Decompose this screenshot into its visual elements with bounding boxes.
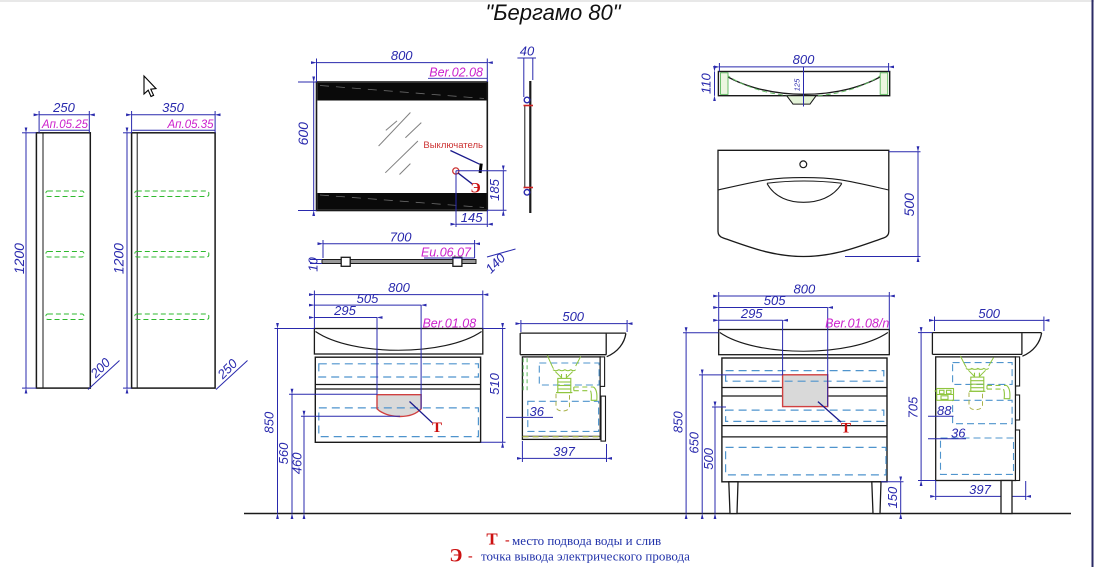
- svg-text:510: 510: [487, 372, 502, 394]
- svg-text:-: -: [505, 533, 510, 548]
- svg-text:185: 185: [487, 178, 502, 200]
- svg-text:350: 350: [162, 100, 184, 115]
- svg-text:705: 705: [906, 396, 921, 418]
- svg-text:Ber.02.08: Ber.02.08: [429, 66, 483, 80]
- svg-text:295: 295: [740, 306, 763, 321]
- svg-text:точка вывода электрического пр: точка вывода электрического провода: [481, 549, 690, 564]
- svg-text:125: 125: [793, 78, 802, 91]
- svg-text:800: 800: [391, 48, 413, 63]
- svg-text:800: 800: [388, 280, 410, 295]
- svg-text:Ап.05.25: Ап.05.25: [41, 119, 89, 131]
- svg-text:Выключатель: Выключатель: [423, 140, 483, 151]
- svg-text:800: 800: [793, 52, 815, 67]
- svg-text:"Бергамо 80": "Бергамо 80": [485, 0, 621, 25]
- svg-text:505: 505: [764, 293, 786, 308]
- svg-text:36: 36: [530, 404, 545, 419]
- svg-text:500: 500: [901, 193, 917, 217]
- svg-text:145: 145: [461, 210, 483, 225]
- svg-text:250: 250: [214, 355, 241, 382]
- svg-text:850: 850: [262, 411, 277, 433]
- svg-text:397: 397: [969, 482, 991, 497]
- svg-text:500: 500: [978, 306, 1000, 321]
- svg-text:1200: 1200: [11, 243, 27, 274]
- svg-text:Ап.05.35: Ап.05.35: [167, 119, 215, 131]
- svg-text:500: 500: [562, 309, 584, 324]
- svg-text:650: 650: [687, 431, 702, 453]
- svg-text:88: 88: [937, 403, 952, 418]
- svg-text:1200: 1200: [111, 243, 127, 274]
- svg-text:40: 40: [520, 44, 535, 59]
- svg-text:Т: Т: [486, 530, 498, 549]
- svg-text:250: 250: [52, 100, 75, 115]
- svg-text:850: 850: [671, 410, 686, 432]
- svg-text:150: 150: [885, 486, 900, 508]
- svg-text:397: 397: [553, 444, 575, 459]
- svg-text:место подвода воды и слив: место подвода воды и слив: [512, 533, 661, 548]
- svg-text:600: 600: [295, 122, 311, 146]
- svg-text:Eu.06.07: Eu.06.07: [421, 246, 472, 260]
- svg-text:Э: Э: [450, 546, 463, 567]
- svg-text:Э: Э: [471, 181, 481, 197]
- svg-text:Ber.01.08/n: Ber.01.08/n: [825, 317, 889, 331]
- svg-text:-: -: [468, 549, 473, 564]
- svg-text:505: 505: [357, 291, 379, 306]
- svg-text:10: 10: [306, 257, 321, 272]
- svg-text:Т: Т: [841, 421, 851, 437]
- svg-text:Т: Т: [432, 420, 442, 436]
- svg-text:295: 295: [333, 303, 356, 318]
- svg-text:500: 500: [701, 447, 716, 469]
- svg-text:460: 460: [290, 452, 305, 474]
- svg-text:140: 140: [482, 250, 508, 276]
- svg-text:110: 110: [699, 72, 714, 93]
- svg-text:36: 36: [951, 425, 966, 440]
- svg-text:700: 700: [390, 230, 412, 245]
- svg-text:800: 800: [794, 282, 816, 297]
- svg-text:Ber.01.08: Ber.01.08: [422, 317, 476, 331]
